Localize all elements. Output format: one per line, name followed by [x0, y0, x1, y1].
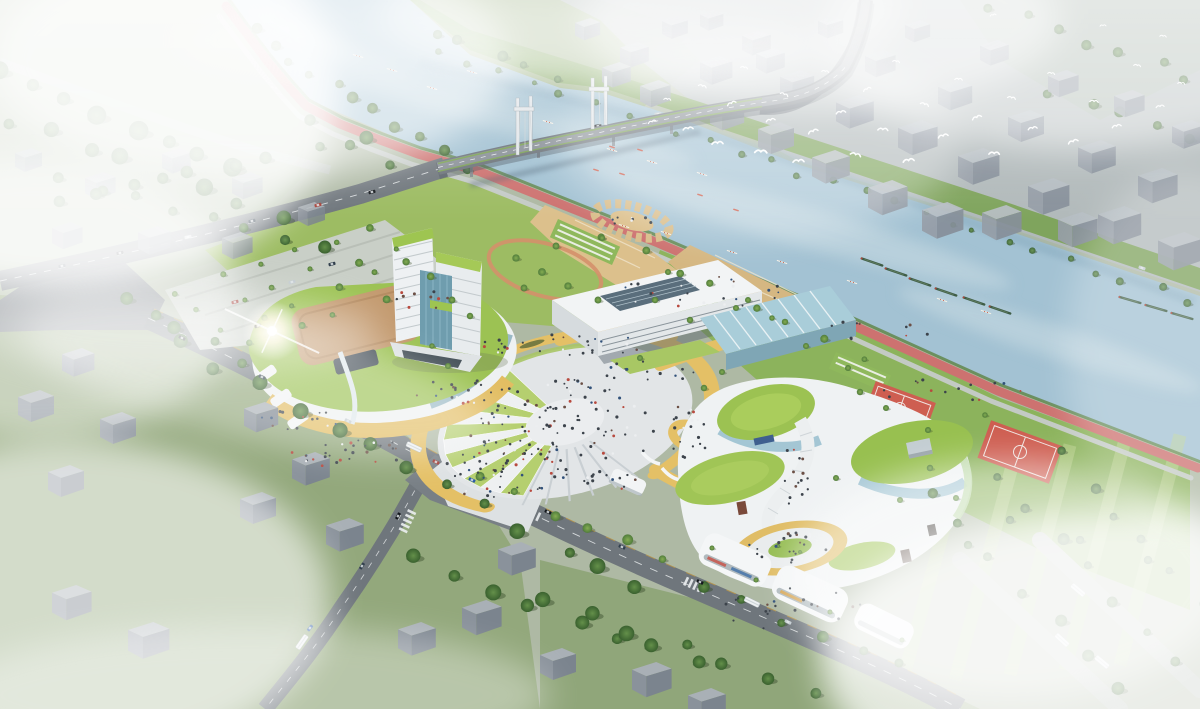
scene-canvas [0, 0, 1200, 709]
aerial-rendering [0, 0, 1200, 709]
